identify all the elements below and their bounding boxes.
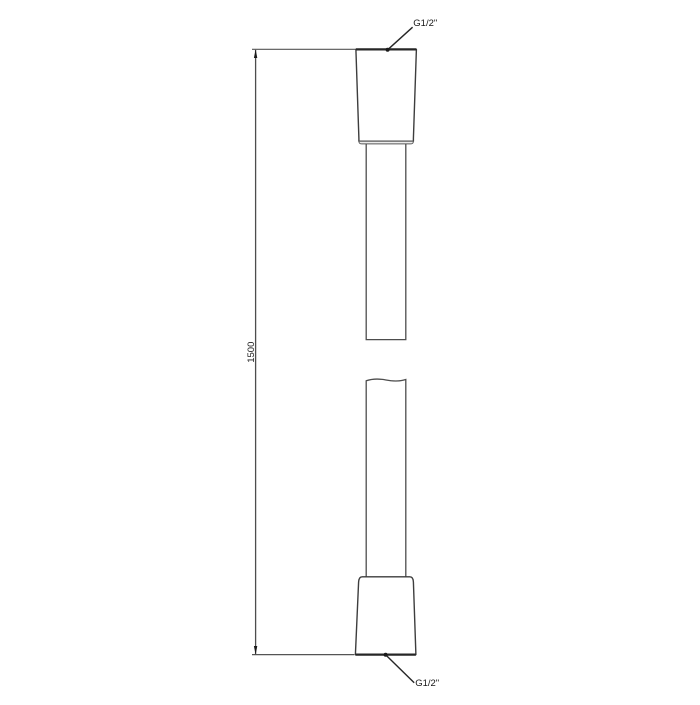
svg-text:G1/2": G1/2" (415, 678, 439, 689)
svg-text:1500: 1500 (246, 342, 257, 363)
svg-text:G1/2": G1/2" (413, 18, 437, 29)
